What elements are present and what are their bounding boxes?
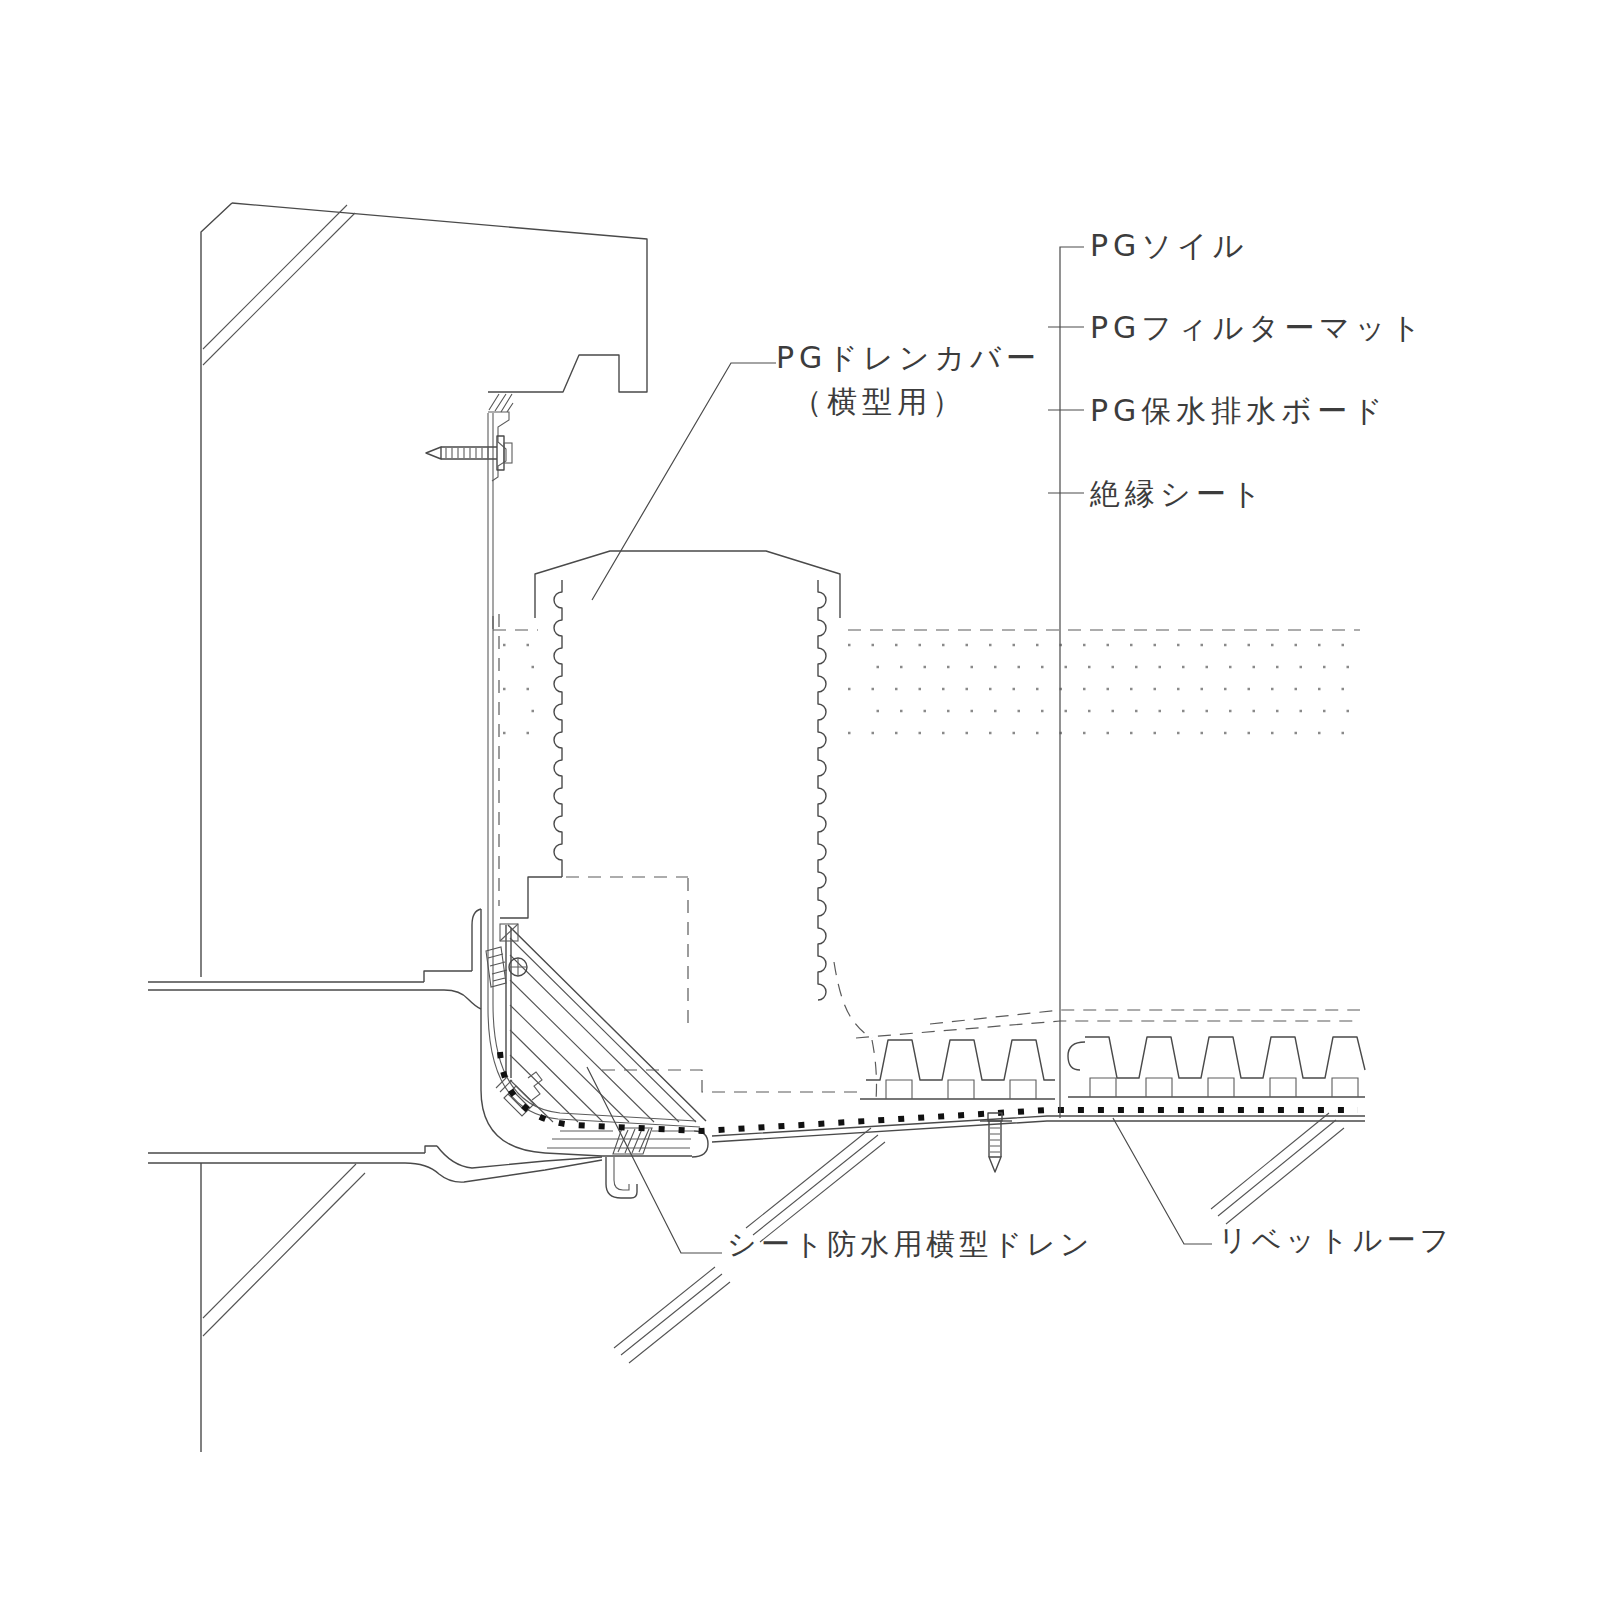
cad-section-detail: PGソイル PGフィルターマット PG保水排水ボード 絶縁シート PGドレンカバ…: [0, 0, 1600, 1600]
label-insulation-sheet: 絶縁シート: [1090, 477, 1266, 510]
label-pg-drain-board: PG保水排水ボード: [1090, 394, 1388, 427]
drain-cover: [500, 551, 877, 1100]
roof-layers: [493, 616, 1360, 1038]
horizontal-drain-body: [472, 909, 708, 1198]
label-rivet-roof: リベットルーフ: [1218, 1225, 1453, 1257]
label-drain-cover-line2: （横型用）: [792, 385, 967, 418]
parapet-wall: [201, 203, 647, 1452]
label-pg-soil: PGソイル: [1090, 229, 1248, 262]
waterproof-sheet: [488, 412, 700, 1127]
label-drain-cover-line1: PGドレンカバー: [776, 341, 1041, 374]
label-sheet-drain: シート防水用横型ドレン: [727, 1229, 1093, 1261]
anchor-bolt-vertical: [980, 1113, 1012, 1172]
drain-pipe: [148, 971, 602, 1182]
label-pg-filter-mat: PGフィルターマット: [1090, 311, 1426, 344]
section-drawing: [0, 0, 1600, 1600]
drain-board: [860, 1037, 1365, 1099]
